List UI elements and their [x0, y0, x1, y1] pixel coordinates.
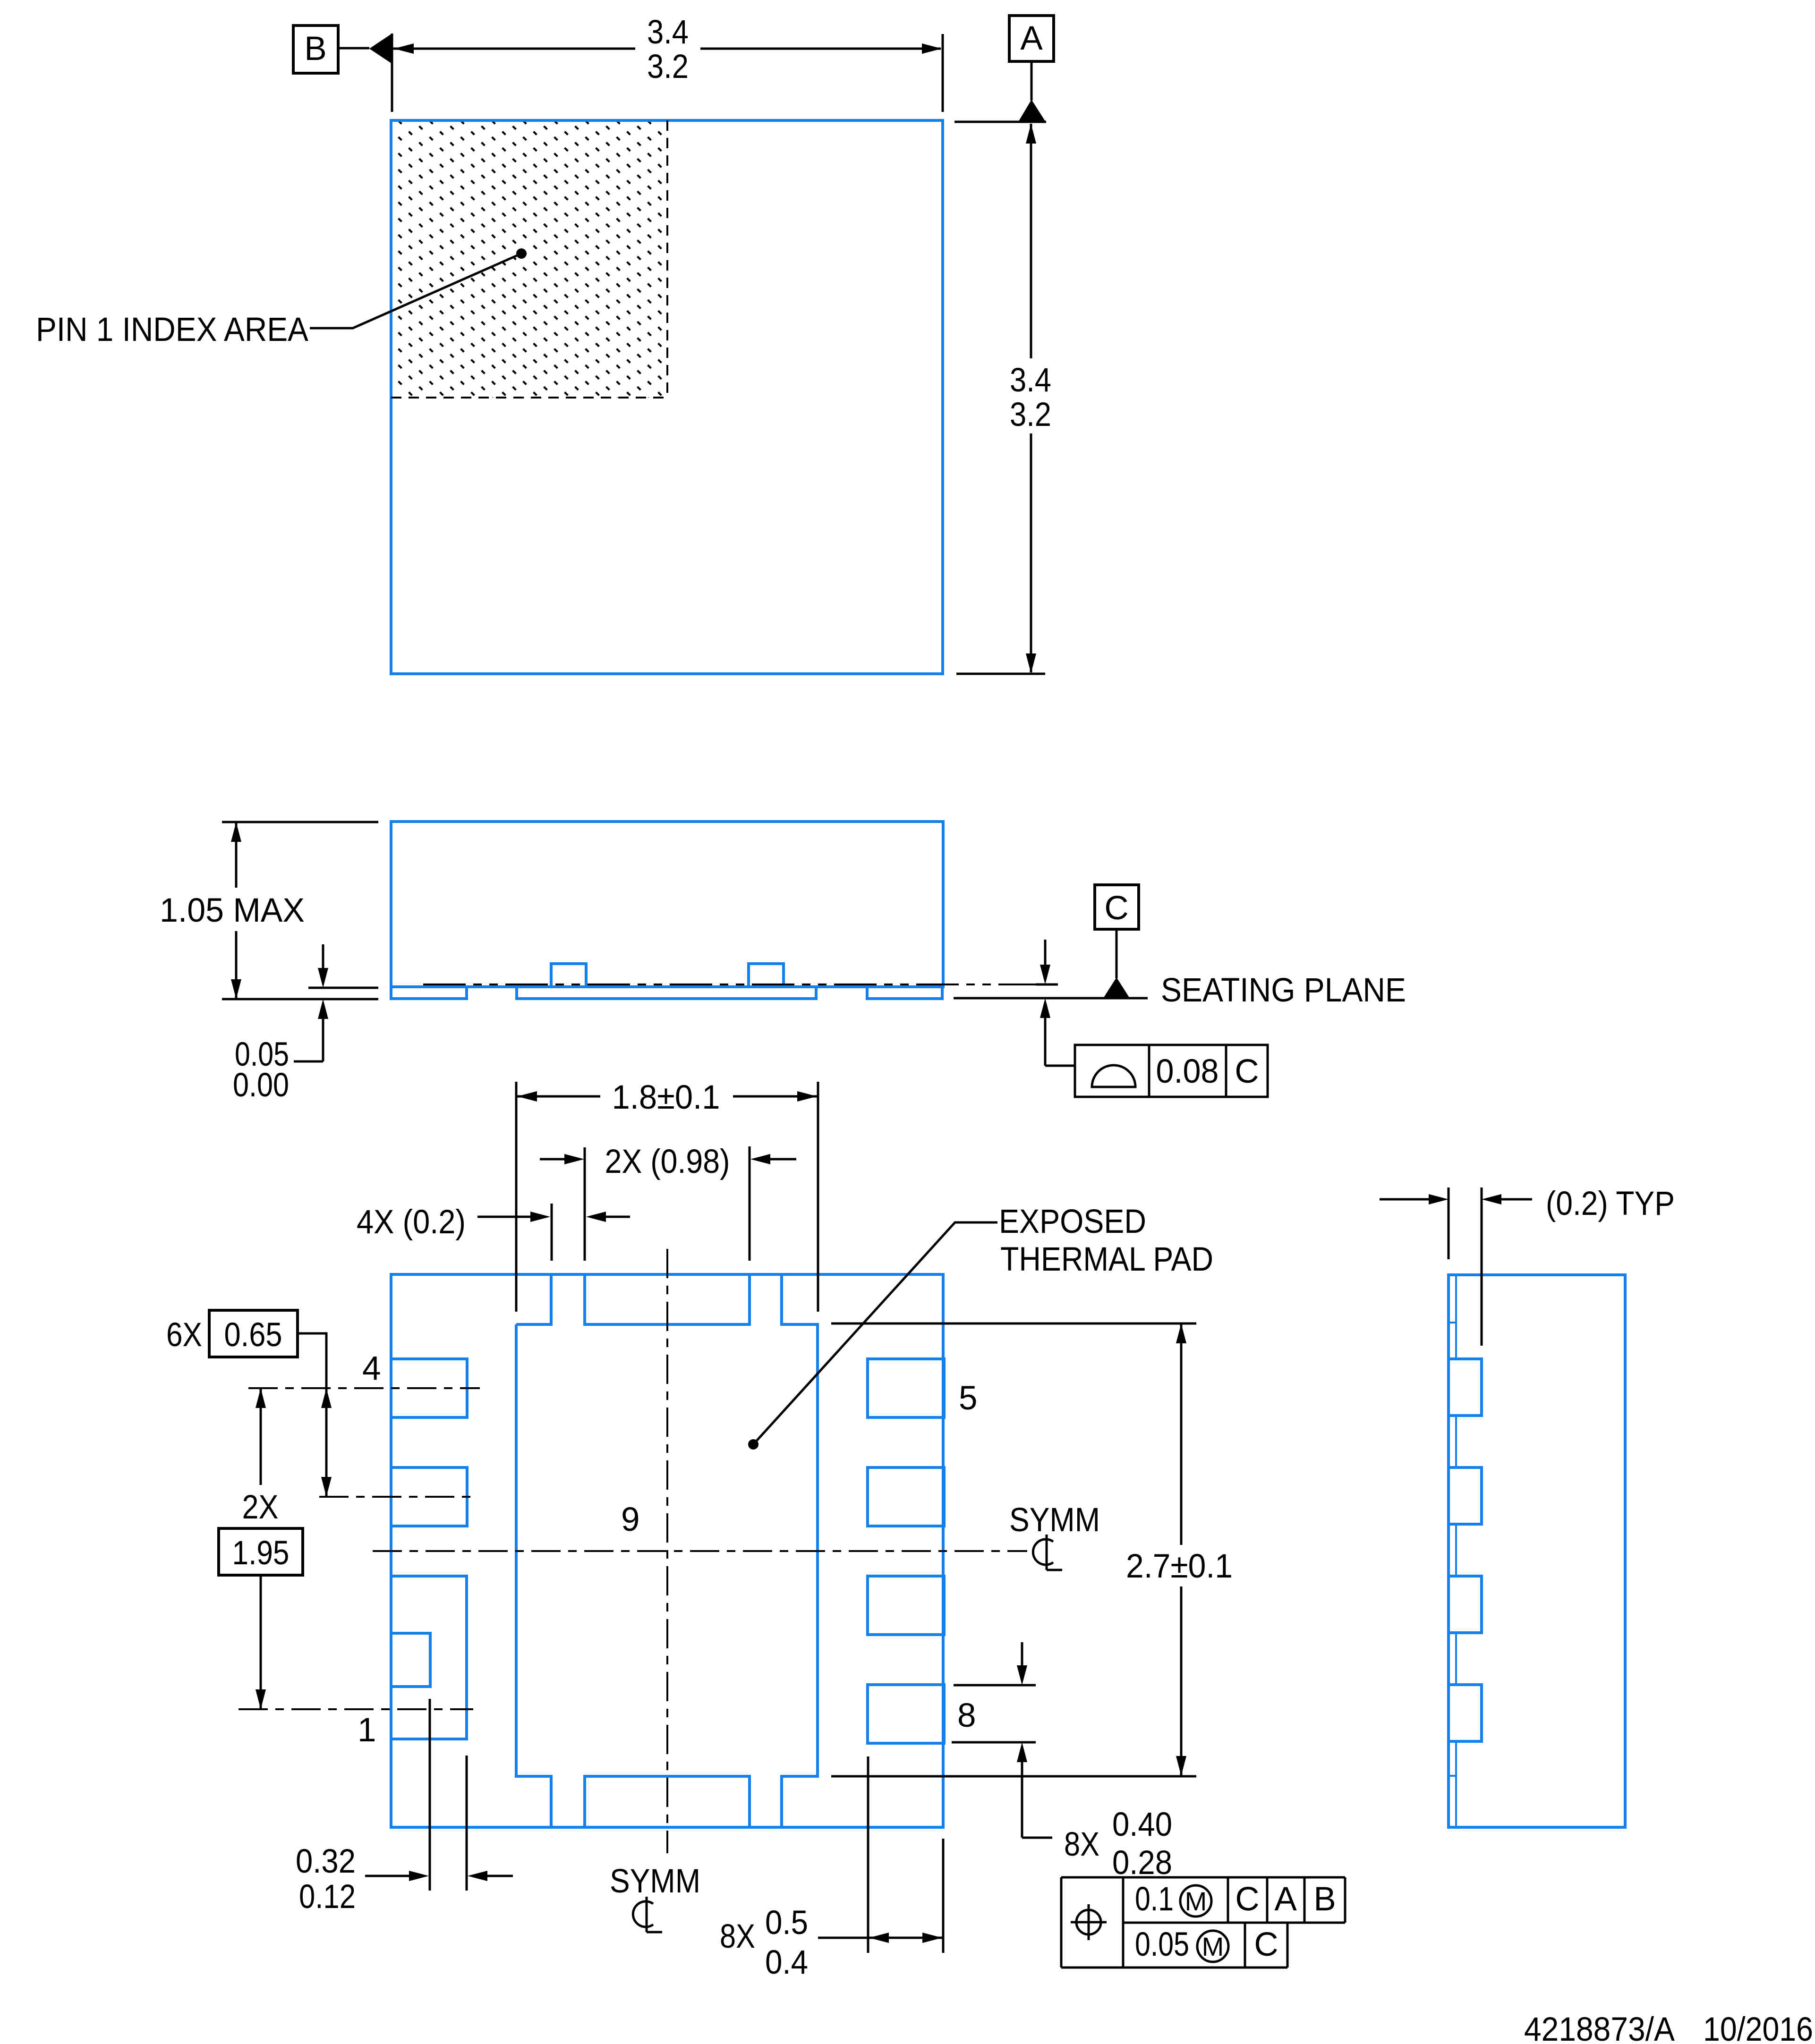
svg-text:0.5: 0.5: [765, 1904, 808, 1942]
svg-text:0.40: 0.40: [1112, 1806, 1172, 1843]
svg-text:2.7±0.1: 2.7±0.1: [1126, 1548, 1233, 1585]
svg-text:C: C: [1104, 890, 1128, 927]
svg-text:SEATING PLANE: SEATING PLANE: [1161, 972, 1406, 1009]
svg-text:1.05 MAX: 1.05 MAX: [160, 892, 305, 929]
svg-text:EXPOSED: EXPOSED: [999, 1203, 1146, 1240]
svg-text:A: A: [1274, 1881, 1297, 1918]
svg-text:C: C: [1235, 1881, 1259, 1918]
svg-text:B: B: [1313, 1881, 1336, 1918]
svg-text:SYMM: SYMM: [610, 1863, 700, 1900]
svg-text:0.4: 0.4: [765, 1944, 808, 1981]
svg-text:5: 5: [959, 1380, 978, 1417]
svg-text:3.2: 3.2: [647, 48, 689, 85]
svg-text:1.8±0.1: 1.8±0.1: [612, 1079, 720, 1116]
svg-text:9: 9: [621, 1501, 640, 1538]
svg-text:A: A: [1020, 20, 1043, 57]
svg-text:2X: 2X: [242, 1489, 279, 1526]
svg-text:10/2016: 10/2016: [1703, 2011, 1813, 2044]
svg-text:0.28: 0.28: [1112, 1844, 1172, 1882]
svg-text:0.08: 0.08: [1156, 1053, 1219, 1090]
svg-text:SYMM: SYMM: [1009, 1501, 1100, 1539]
svg-text:4: 4: [362, 1350, 381, 1387]
svg-text:8: 8: [957, 1697, 976, 1734]
svg-text:3.4: 3.4: [647, 14, 689, 51]
svg-text:0.1: 0.1: [1135, 1881, 1174, 1918]
svg-text:0.32: 0.32: [296, 1843, 356, 1880]
svg-text:PIN 1 INDEX AREA: PIN 1 INDEX AREA: [36, 311, 309, 348]
svg-text:0.00: 0.00: [233, 1067, 289, 1104]
svg-text:4X (0.2): 4X (0.2): [357, 1204, 466, 1241]
svg-text:0.05: 0.05: [1135, 1926, 1189, 1963]
svg-text:0.12: 0.12: [299, 1878, 356, 1916]
svg-text:THERMAL PAD: THERMAL PAD: [1000, 1241, 1213, 1278]
svg-text:1: 1: [358, 1712, 376, 1749]
svg-text:8X: 8X: [720, 1918, 755, 1955]
svg-text:C: C: [1235, 1053, 1259, 1090]
svg-text:B: B: [304, 30, 326, 68]
svg-text:(0.2) TYP: (0.2) TYP: [1546, 1185, 1675, 1222]
svg-text:4218873/A: 4218873/A: [1524, 2011, 1675, 2044]
svg-text:6X: 6X: [166, 1316, 202, 1354]
svg-text:2X (0.98): 2X (0.98): [605, 1143, 730, 1180]
svg-text:1.95: 1.95: [232, 1535, 290, 1572]
svg-text:M: M: [1202, 1932, 1224, 1961]
svg-text:M: M: [1185, 1886, 1207, 1916]
svg-text:0.65: 0.65: [224, 1316, 282, 1354]
svg-text:3.2: 3.2: [1010, 396, 1051, 433]
svg-text:C: C: [1254, 1926, 1278, 1963]
svg-text:3.4: 3.4: [1010, 362, 1051, 399]
svg-text:8X: 8X: [1064, 1826, 1099, 1863]
